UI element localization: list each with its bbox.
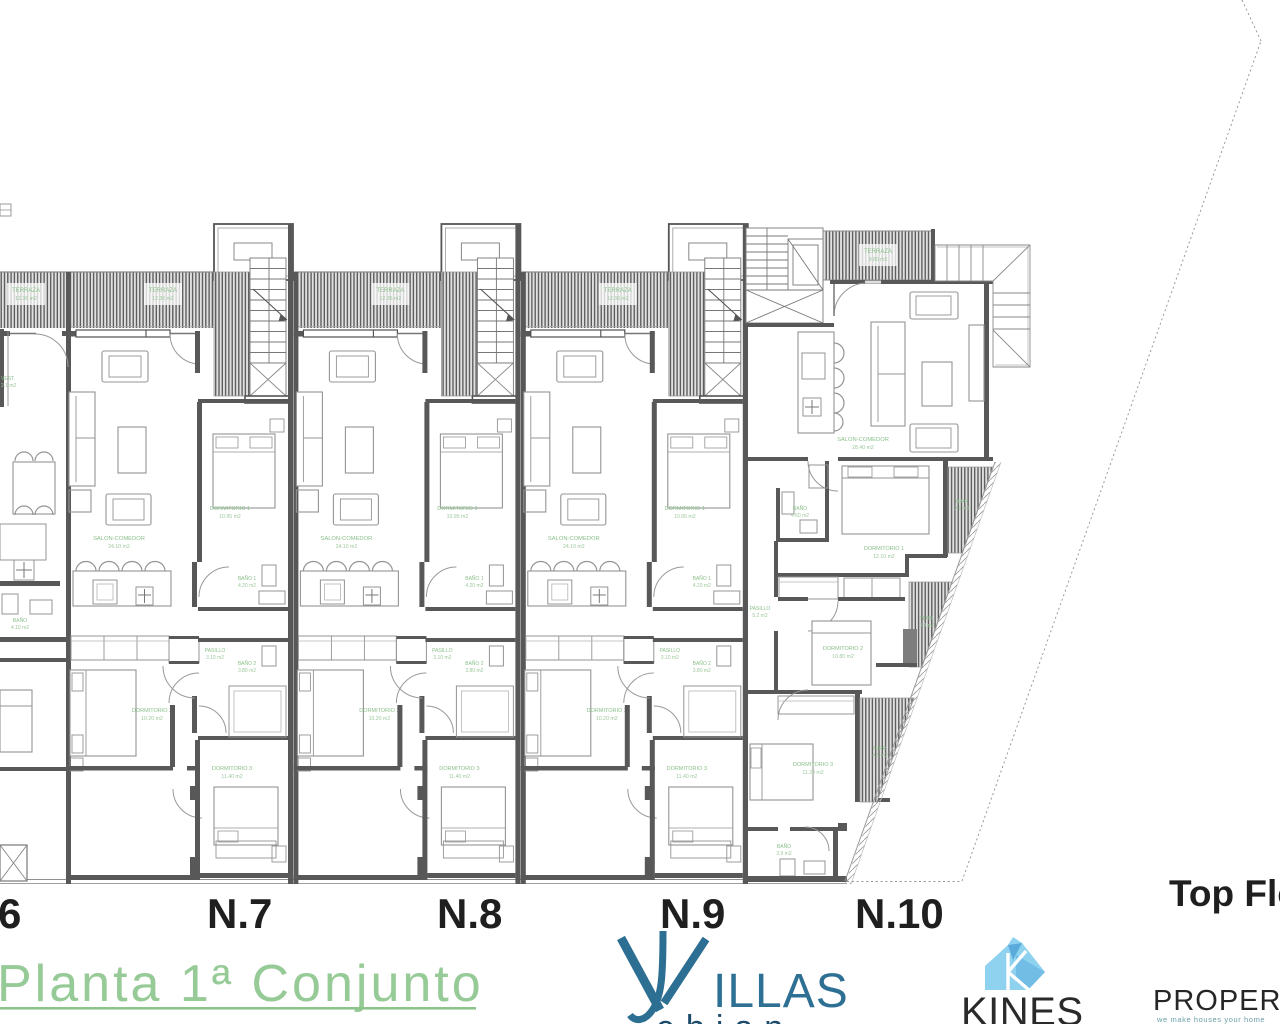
svg-text:KINES: KINES	[961, 990, 1084, 1024]
svg-text:11.20 m2: 11.20 m2	[802, 770, 823, 776]
svg-text:TERR.: TERR.	[955, 499, 970, 505]
svg-text:9.80 m2: 9.80 m2	[869, 257, 888, 263]
svg-text:28.40 m2: 28.40 m2	[852, 445, 874, 451]
svg-text:TERR.: TERR.	[920, 616, 935, 622]
svg-text:3.4 m2: 3.4 m2	[919, 623, 935, 629]
svg-text:PROPERTIES: PROPERTIES	[1153, 985, 1280, 1017]
svg-text:12.10 m2: 12.10 m2	[873, 554, 895, 560]
svg-text:BAÑO: BAÑO	[777, 843, 791, 850]
svg-text:VEST.: VEST.	[1, 376, 15, 382]
svg-text:ebian: ebian	[656, 1009, 794, 1024]
svg-text:4.1 m2: 4.1 m2	[872, 753, 888, 759]
svg-text:6: 6	[0, 890, 21, 937]
svg-text:3.9 m2: 3.9 m2	[776, 851, 792, 857]
svg-text:Top Floor: Top Floor	[1169, 873, 1280, 914]
svg-text:we make houses your home: we make houses your home	[1156, 1015, 1265, 1024]
svg-text:N.9: N.9	[660, 890, 725, 937]
svg-text:SALON-COMEDOR: SALON-COMEDOR	[837, 437, 889, 443]
svg-text:12.36 m2: 12.36 m2	[15, 296, 37, 302]
svg-text:4.60 m2: 4.60 m2	[791, 513, 809, 519]
svg-text:DORMITORIO 3: DORMITORIO 3	[793, 762, 833, 768]
svg-text:PASILLO: PASILLO	[750, 606, 771, 612]
svg-text:TERRAZA: TERRAZA	[864, 249, 892, 255]
svg-text:Planta 1ª Conjunto: Planta 1ª Conjunto	[0, 955, 484, 1013]
svg-text:BAÑO: BAÑO	[793, 505, 807, 512]
svg-text:2.1 m2: 2.1 m2	[1, 383, 17, 389]
svg-text:TERRAZA: TERRAZA	[12, 288, 40, 294]
svg-text:DORMITORIO 1: DORMITORIO 1	[864, 546, 904, 552]
svg-text:N.8: N.8	[437, 890, 502, 937]
svg-text:5.2 m2: 5.2 m2	[752, 613, 768, 619]
svg-text:DORMITORIO 2: DORMITORIO 2	[823, 646, 863, 652]
svg-text:3.2 m2: 3.2 m2	[954, 506, 970, 512]
svg-text:4.10 m2: 4.10 m2	[11, 625, 29, 631]
svg-text:TERR.: TERR.	[873, 746, 888, 752]
svg-text:N.7: N.7	[207, 890, 272, 937]
svg-text:BAÑO: BAÑO	[13, 617, 27, 624]
svg-text:N.10: N.10	[855, 890, 944, 937]
svg-text:10.80 m2: 10.80 m2	[832, 654, 854, 660]
